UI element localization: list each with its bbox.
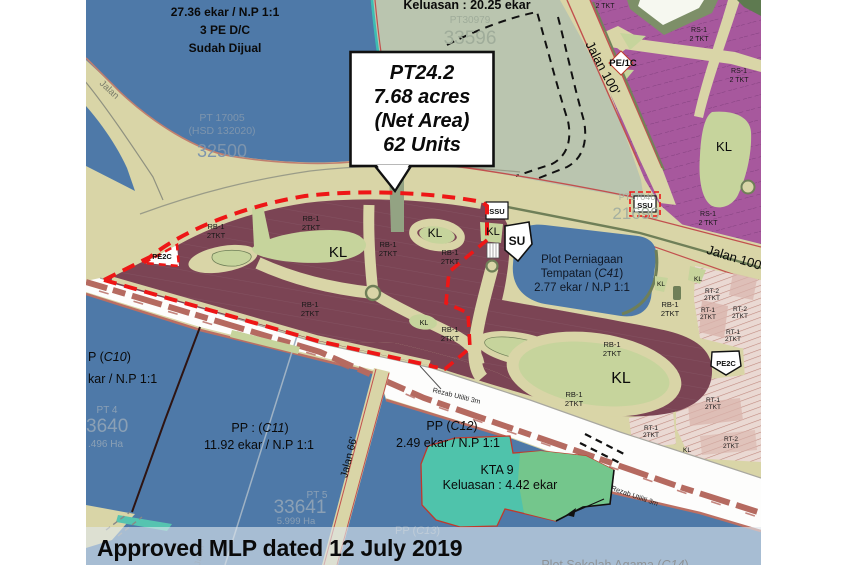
svg-text:RB-1: RB-1	[301, 300, 318, 309]
svg-text:2TKT: 2TKT	[379, 249, 398, 258]
svg-text:RB-1: RB-1	[441, 248, 458, 257]
svg-text:2.77 ekar / N.P 1:1: 2.77 ekar / N.P 1:1	[534, 282, 630, 294]
svg-text:Approved MLP dated 12 July 201: Approved MLP dated 12 July 2019	[97, 535, 462, 561]
svg-text:KL: KL	[486, 226, 499, 238]
svg-text:RB-1: RB-1	[661, 300, 678, 309]
svg-text:KL: KL	[329, 244, 347, 261]
svg-text:Tempatan (C41): Tempatan (C41)	[541, 268, 624, 280]
svg-text:2TKT: 2TKT	[723, 443, 739, 450]
svg-text:(Net Area): (Net Area)	[375, 110, 470, 132]
svg-text:2TKT: 2TKT	[705, 404, 721, 411]
svg-text:P (C10): P (C10)	[88, 350, 131, 364]
svg-text:2TKT: 2TKT	[732, 313, 748, 320]
svg-text:RB-1: RB-1	[302, 214, 319, 223]
svg-text:2 TKT: 2 TKT	[699, 220, 719, 227]
svg-text:.496 Ha: .496 Ha	[88, 439, 123, 450]
svg-text:33596: 33596	[444, 28, 497, 49]
svg-text:PT 17005: PT 17005	[199, 112, 245, 124]
svg-text:RT-1: RT-1	[726, 329, 740, 336]
svg-text:KL: KL	[420, 320, 429, 327]
svg-text:32500: 32500	[197, 141, 247, 161]
svg-text:KL: KL	[694, 276, 702, 283]
svg-text:2TKT: 2TKT	[441, 257, 460, 266]
svg-text:RT-2: RT-2	[724, 436, 738, 443]
svg-text:PE2C: PE2C	[716, 359, 736, 368]
svg-text:2 TKT: 2 TKT	[730, 77, 750, 84]
svg-text:RS-1: RS-1	[691, 27, 707, 34]
svg-text:PT 4: PT 4	[97, 405, 118, 416]
svg-text:RB-1: RB-1	[379, 240, 396, 249]
svg-text:RS-1: RS-1	[700, 211, 716, 218]
svg-text:2 TKT: 2 TKT	[690, 36, 710, 43]
svg-text:KL: KL	[683, 447, 691, 454]
svg-text:5.999 Ha: 5.999 Ha	[277, 516, 316, 527]
svg-text:KTA 9: KTA 9	[480, 463, 513, 477]
svg-text:27.36 ekar / N.P 1:1: 27.36 ekar / N.P 1:1	[171, 5, 280, 19]
svg-text:RB-1: RB-1	[603, 340, 620, 349]
svg-text:2TKT: 2TKT	[441, 334, 460, 343]
svg-text:2TKT: 2TKT	[700, 314, 716, 321]
svg-text:RT-2: RT-2	[705, 288, 719, 295]
svg-text:2TKT: 2TKT	[207, 231, 226, 240]
svg-text:PT30979: PT30979	[450, 15, 491, 26]
svg-text:33641: 33641	[274, 497, 327, 518]
svg-text:11.92 ekar / N.P 1:1: 11.92 ekar / N.P 1:1	[204, 438, 314, 452]
svg-text:SU: SU	[509, 234, 526, 248]
svg-text:RB-1: RB-1	[207, 222, 224, 231]
svg-text:KL: KL	[611, 370, 631, 387]
svg-text:2TKT: 2TKT	[565, 399, 584, 408]
svg-text:2TKT: 2TKT	[301, 309, 320, 318]
svg-text:RT-1: RT-1	[644, 425, 658, 432]
svg-text:KL: KL	[716, 139, 732, 154]
svg-text:7.68 acres: 7.68 acres	[374, 86, 471, 108]
svg-text:Keluasan : 20.25 ekar: Keluasan : 20.25 ekar	[403, 0, 530, 12]
svg-text:PE2C: PE2C	[152, 252, 172, 261]
svg-text:Plot Perniagaan: Plot Perniagaan	[541, 254, 623, 266]
svg-text:PE/1C: PE/1C	[609, 58, 637, 69]
svg-text:PP : (C11): PP : (C11)	[231, 421, 288, 435]
svg-text:RT-1: RT-1	[706, 397, 720, 404]
svg-text:2 TKT: 2 TKT	[596, 3, 616, 10]
svg-text:2TKT: 2TKT	[725, 336, 741, 343]
svg-text:kar / N.P 1:1: kar / N.P 1:1	[88, 372, 157, 386]
svg-text:2TKT: 2TKT	[302, 223, 321, 232]
svg-text:KL: KL	[657, 281, 665, 288]
svg-text:PP (C12): PP (C12)	[426, 419, 477, 433]
svg-text:2TKT: 2TKT	[643, 432, 659, 439]
svg-text:2TKT: 2TKT	[603, 349, 622, 358]
svg-text:2TKT: 2TKT	[704, 295, 720, 302]
svg-text:SSU: SSU	[637, 201, 652, 210]
svg-text:2TKT: 2TKT	[661, 309, 680, 318]
svg-text:RB-1: RB-1	[565, 390, 582, 399]
svg-text:3640: 3640	[86, 416, 128, 437]
svg-text:SSU: SSU	[489, 207, 504, 216]
svg-text:(HSD 132020): (HSD 132020)	[188, 125, 255, 137]
svg-text:PT24.2: PT24.2	[390, 62, 454, 84]
svg-text:RT-2: RT-2	[733, 306, 747, 313]
svg-text:RS-1: RS-1	[731, 68, 747, 75]
svg-text:62 Units: 62 Units	[383, 134, 461, 156]
svg-text:2.49 ekar / N.P 1:1: 2.49 ekar / N.P 1:1	[396, 436, 500, 450]
svg-text:3 PE D/C: 3 PE D/C	[200, 23, 250, 37]
svg-text:Keluasan : 4.42 ekar: Keluasan : 4.42 ekar	[443, 478, 558, 492]
svg-text:RB-1: RB-1	[441, 325, 458, 334]
svg-text:Sudah Dijual: Sudah Dijual	[189, 41, 262, 55]
svg-text:KL: KL	[428, 226, 443, 240]
svg-text:RT-1: RT-1	[701, 307, 715, 314]
